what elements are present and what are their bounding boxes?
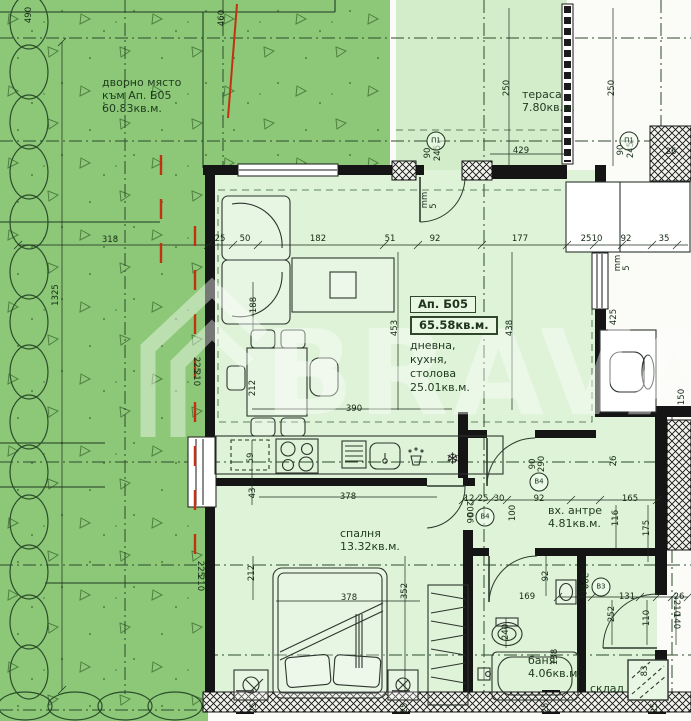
dimension-label: 188 [249, 297, 259, 313]
dimension-label: 177 [512, 234, 528, 244]
living-sliding-window [592, 253, 608, 309]
dimension-label: 165 [622, 494, 638, 504]
dimension-label: 35 [659, 234, 670, 244]
dimension-label: 92 [541, 571, 551, 582]
dimension-label: 182 [310, 234, 326, 244]
yard-label-line2: към Ап. Б05 [102, 89, 181, 102]
fixture-marker: В3 [592, 578, 611, 597]
nightstand-right [388, 670, 418, 700]
dimension-label: 110 [642, 610, 652, 626]
bath-area-value: 4.06кв.м. [528, 667, 581, 680]
bedroom-window [188, 437, 216, 507]
dimension-label: 240 [501, 624, 511, 640]
living-label-line3: столова [410, 367, 498, 381]
fixture-marker: В4 [530, 473, 549, 492]
dimension-label: 438 [505, 320, 515, 336]
dimension-label: 100 [508, 505, 518, 521]
dimension-label: 250 [607, 80, 617, 96]
dimension-label: 378 [341, 593, 357, 603]
terrace-label: тераса 7.80кв.м. [522, 88, 575, 114]
dimension-label: 210 [191, 370, 201, 386]
fixture-marker: П1 [427, 132, 446, 151]
apartment-label: Ап. Б05 65.58кв.м. дневна, кухня, столов… [410, 296, 498, 395]
dimension-label: 252 [607, 606, 617, 622]
dimension-label: 116 [611, 510, 621, 526]
hall-name: вх. антре [548, 504, 602, 517]
dimension-label: 92 [621, 234, 632, 244]
dimension-label: 453 [390, 320, 400, 336]
fixture-marker: П1 [620, 132, 639, 151]
dimension-label: 5 [429, 203, 439, 208]
dimension-label: 25 [478, 494, 489, 504]
bedroom-area-value: 13.32кв.м. [340, 540, 400, 553]
dimension-label: 26 [609, 456, 619, 467]
dimension-label: 175 [642, 520, 652, 536]
dimension-label: 318 [102, 235, 118, 245]
dimension-label: 490 [24, 7, 34, 23]
dimension-label: 425 [609, 309, 619, 325]
dimension-label: 92 [430, 234, 441, 244]
hall-area-value: 4.81кв.м. [548, 517, 602, 530]
yard-label: дворно място към Ап. Б05 60.83кв.м. [102, 76, 181, 115]
living-label-line1: дневна, [410, 339, 498, 353]
dimension-label: 290 [537, 456, 547, 472]
terrace-area-value: 7.80кв.м. [522, 101, 575, 114]
dimension-label: 25 [581, 234, 592, 244]
dimension-label: 25 [650, 703, 660, 714]
dimension-label: 5 [622, 265, 632, 270]
dimension-label: 131 [619, 592, 635, 602]
dimension-label: 30 [494, 494, 505, 504]
storage-label: склад [590, 682, 624, 695]
living-label-line2: кухня, [410, 353, 498, 367]
dimension-label: 212 [248, 380, 258, 396]
fixture-marker: В4 [476, 508, 495, 527]
dimension-label: 51 [385, 234, 396, 244]
dimension-label: 210 [195, 575, 205, 591]
terrace-name: тераса [522, 88, 575, 101]
dimension-label: 25 [400, 703, 410, 714]
bedroom-label: спалня 13.32кв.м. [340, 527, 400, 553]
dimension-label: 150 [677, 389, 687, 405]
apartment-id-box: Ап. Б05 [410, 296, 476, 313]
dimension-label: 138 [550, 649, 560, 665]
dimension-label: 212 [247, 565, 257, 581]
dimension-label: 50 [240, 234, 251, 244]
dimension-label: 92 [534, 494, 545, 504]
fridge-icon: ❄ [446, 449, 459, 468]
dimension-label: 352 [400, 583, 410, 599]
hall-label: вх. антре 4.81кв.м. [548, 504, 602, 530]
dimension-label: 43 [248, 488, 258, 499]
dimension-label: 460 [217, 10, 227, 26]
dimension-label: 25 [541, 703, 551, 714]
dimension-label: 59 [246, 453, 256, 464]
dimension-label: 10 [592, 234, 603, 244]
yard-area-value: 60.83кв.м. [102, 102, 181, 115]
dimension-label: 378 [340, 492, 356, 502]
dimension-label: 25 [249, 703, 259, 714]
dimension-label: 429 [513, 146, 529, 156]
terrace-area [396, 0, 567, 170]
dimension-label: 06 [464, 513, 474, 524]
dimension-label: 169 [519, 592, 535, 602]
living-area-value: 25.01кв.м. [410, 381, 498, 395]
bed [273, 568, 387, 698]
bedroom-name: спалня [340, 527, 400, 540]
washbasin-icon [556, 580, 576, 604]
dimension-label: 390 [346, 404, 362, 414]
dimension-label: 250 [502, 80, 512, 96]
nightstand-left [234, 670, 268, 700]
dimension-label: 140 [671, 613, 681, 629]
floor-plan: ❄ [0, 0, 691, 721]
dimension-label: 25 [215, 234, 226, 244]
dimension-label: 1325 [51, 284, 61, 306]
storage-name: склад [590, 682, 624, 695]
apartment-total-area-box: 65.58кв.м. [410, 316, 498, 335]
dimension-label: 06 [577, 585, 587, 596]
dimension-label: 26 [666, 147, 677, 157]
yard-label-line1: дворно място [102, 76, 181, 89]
dimension-label: 83 [640, 666, 650, 677]
